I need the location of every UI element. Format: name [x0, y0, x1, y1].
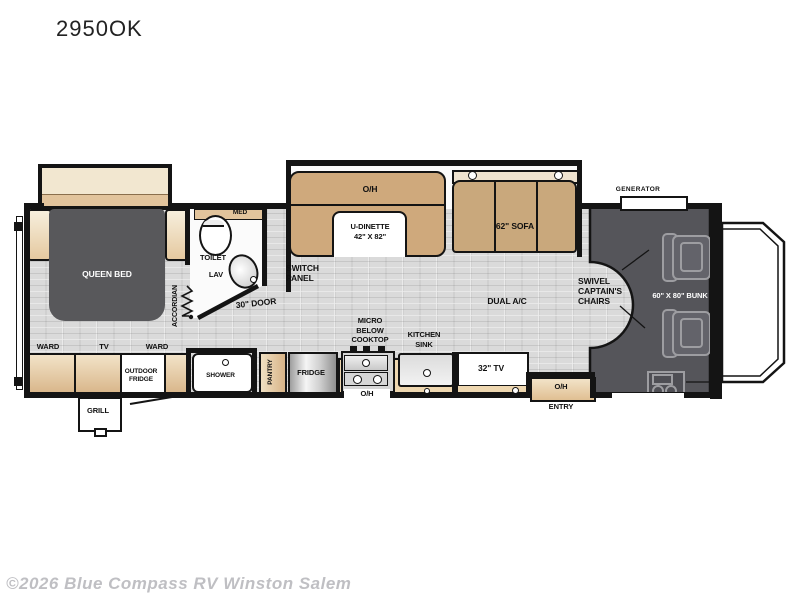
cooktop-burner-1 [353, 375, 362, 384]
captain-chair-1 [672, 235, 711, 280]
fridge-label: FRIDGE [288, 368, 334, 378]
generator-compartment [620, 196, 688, 211]
cooktop-burner-2 [373, 375, 382, 384]
entry-oh-label: O/H [530, 382, 592, 392]
wall-front [710, 203, 722, 399]
cab-console-screen [652, 374, 673, 385]
lav-label: LAV [204, 270, 228, 280]
front-cap [722, 223, 784, 382]
med-cabinet-label: MED [222, 209, 258, 217]
ward-label-right: WARD [138, 342, 176, 352]
cooktop-knob-2 [363, 346, 370, 351]
tv-32-label: 32" TV [457, 363, 525, 373]
captain-chair-2 [672, 311, 711, 356]
queen-bed: QUEEN BED [49, 209, 165, 321]
floorplan-page: 2950OK QUEEN BED ACCORDIAN [0, 0, 800, 600]
dinette-oh-label: O/H [332, 184, 408, 194]
cooktop-knob-3 [378, 346, 385, 351]
shower-label: SHOWER [192, 372, 249, 380]
bath-wall-right [262, 207, 267, 286]
generator-label: GENERATOR [606, 186, 670, 194]
cooktop-knob-1 [350, 346, 357, 351]
toilet [199, 215, 232, 256]
switch-panel-label: SWITCH PANEL [286, 263, 338, 283]
u-dinette-label: U-DINETTE 42" X 82" [326, 222, 414, 241]
toilet-tank [203, 220, 224, 227]
queen-headboard [42, 194, 168, 206]
toilet-label: TOILET [190, 253, 236, 263]
shower-wall-top [186, 348, 257, 353]
dinette-oh-divider [291, 204, 444, 206]
swivel-chairs-label: SWIVEL CAPTAIN'S CHAIRS [578, 276, 624, 306]
sink-drain [423, 369, 431, 377]
cooktop [341, 351, 395, 393]
shower-drain [222, 359, 229, 366]
slide-wall-right [577, 160, 582, 257]
sofa-label: 62" SOFA [470, 221, 560, 231]
kitchen-sink-label: KITCHEN SINK [396, 330, 452, 349]
sofa-cupholder-left [468, 171, 477, 180]
rear-marker-top [14, 222, 22, 231]
rear-bumper [16, 216, 23, 390]
captain-chair-2-seat [680, 318, 703, 348]
captain-chair-1-seat [680, 242, 703, 272]
page-title: 2950OK [56, 16, 143, 42]
watermark: ©2026 Blue Compass RV Winston Salem [6, 574, 351, 594]
sofa-cushion-divider-1 [494, 182, 496, 251]
sofa [452, 180, 577, 253]
lav-faucet [250, 276, 257, 283]
shower-wall-left [186, 348, 191, 392]
latch-dot [512, 387, 519, 394]
cooktop-oh-label: O/H [344, 389, 390, 399]
cooktop-pilot [362, 359, 370, 367]
cab-entry-step [612, 393, 684, 401]
outdoor-fridge-label: OUTDOOR FRIDGE [119, 368, 163, 384]
front-cap-inner-line [722, 229, 778, 376]
dual-ac-label: DUAL A/C [472, 296, 542, 306]
queen-bed-label: QUEEN BED [49, 269, 165, 279]
grill-label: GRILL [78, 406, 118, 416]
wall-top-a [24, 203, 44, 209]
sofa-cupholder-right [554, 171, 563, 180]
ward-label-left: WARD [29, 342, 67, 352]
queen-slide-out [38, 164, 172, 210]
wall-bottom-a [24, 392, 530, 398]
grill-knob [94, 428, 107, 437]
pantry-label: PANTRY [267, 352, 277, 392]
shower-wall-right [252, 348, 257, 392]
wall-rear [24, 203, 30, 398]
entry-recess-wall [528, 372, 594, 377]
accordian-door-label: ACCORDIAN [171, 283, 181, 329]
bunk-label: 60" X 80" BUNK [634, 291, 726, 301]
entry-label: ENTRY [530, 402, 592, 412]
cabinet-divider-1 [74, 355, 76, 393]
counter-knob [424, 388, 430, 394]
micro-below-cooktop-label: MICRO BELOW COOKTOP [343, 316, 397, 345]
tv-label: TV [90, 342, 118, 352]
rear-marker-bottom [14, 377, 22, 386]
sofa-cushion-divider-2 [536, 182, 538, 251]
slide-wall-top [286, 160, 582, 166]
